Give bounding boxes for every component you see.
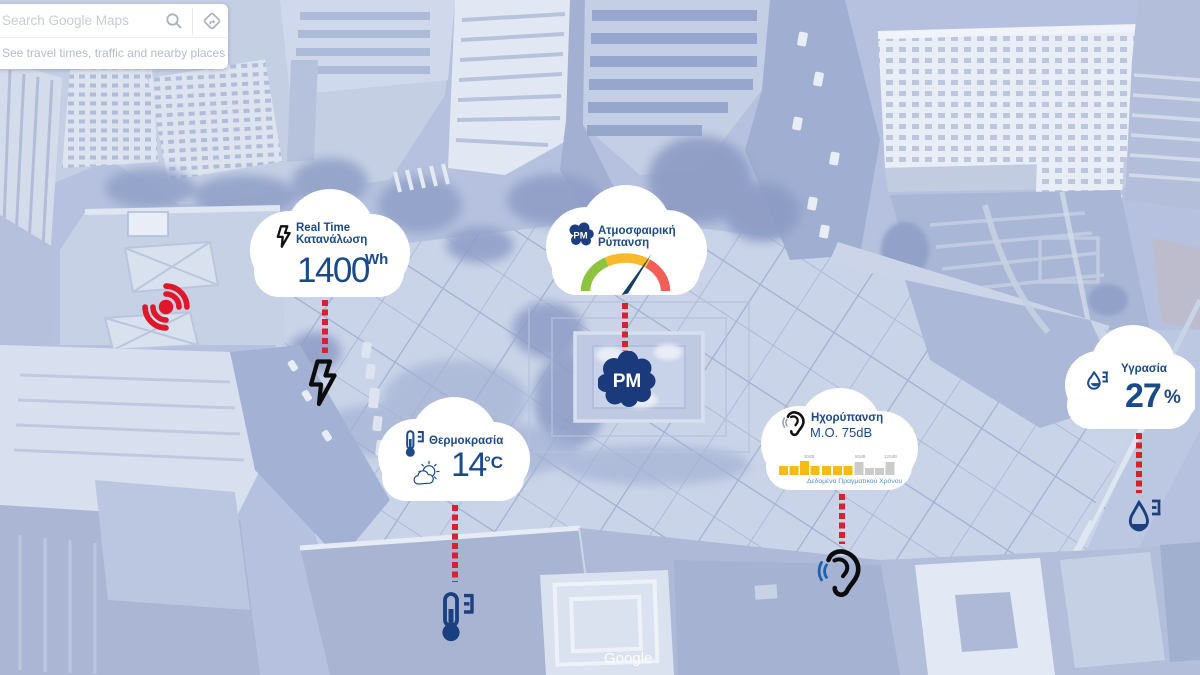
svg-text:PM: PM [613, 371, 642, 392]
svg-text:PM: PM [573, 231, 587, 242]
svg-text:Google: Google [604, 650, 652, 667]
svg-text:30dB: 30dB [804, 454, 815, 459]
svg-text:80dB: 80dB [855, 454, 866, 459]
svg-text:120dB: 120dB [884, 454, 897, 459]
